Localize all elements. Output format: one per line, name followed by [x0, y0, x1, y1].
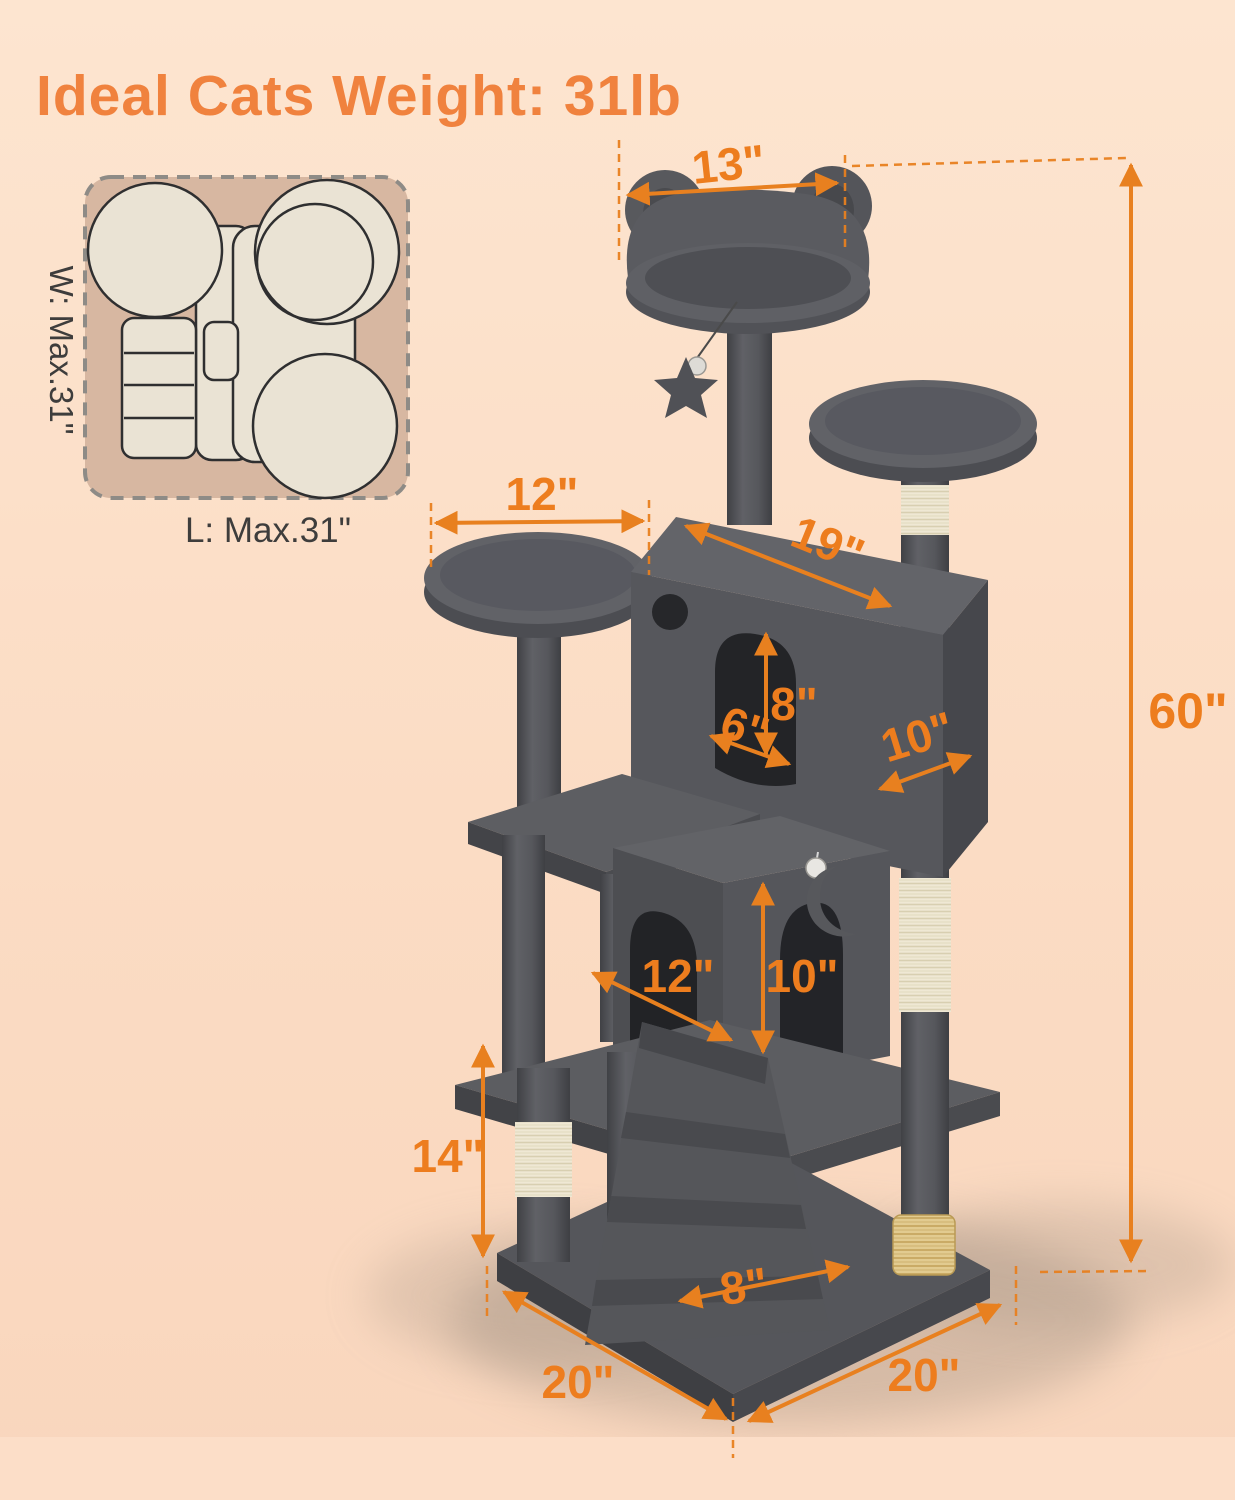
dim-label-left-perch-width: 12": [506, 468, 579, 520]
dim-label-base-length: 20": [542, 1356, 615, 1408]
condo-peek-hole: [652, 594, 688, 630]
floor-front-band: [0, 1437, 1235, 1500]
sisal-band-top: [901, 485, 949, 535]
footprint-small-block: [204, 322, 238, 380]
footprint-perch-circle-bottom: [253, 354, 397, 498]
left-perch-post: [517, 608, 561, 820]
dim-label-base-width: 20": [888, 1349, 961, 1401]
left-perch: [424, 532, 652, 638]
product-dimension-image: Ideal Cats Weight: 31lb W: Max.31" L: Ma…: [0, 0, 1235, 1500]
footprint-perch-circle-top: [255, 180, 399, 324]
footprint-ramp-block: [122, 318, 196, 458]
cat-self-groomer-brush: [893, 1215, 955, 1275]
illustration-canvas: Ideal Cats Weight: 31lb W: Max.31" L: Ma…: [0, 0, 1235, 1500]
footprint-length-label: L: Max.31": [185, 511, 351, 550]
footprint-perch-circle-left: [88, 183, 222, 317]
sisal-band-mid: [899, 878, 951, 1012]
lower-left-scratching-post: [515, 1068, 572, 1262]
sisal-band-lower-left: [515, 1122, 572, 1197]
perch-cushion: [645, 247, 851, 309]
dim-line-left-perch-width: [436, 521, 643, 523]
dim-label-ramp-width: 8": [717, 1257, 771, 1315]
dim-label-top-perch-width: 13": [689, 134, 767, 193]
footprint-inset: W: Max.31" L: Max.31": [43, 177, 408, 550]
right-post-lower: [893, 1012, 955, 1275]
dim-label-total-height: 60": [1148, 683, 1227, 739]
dim-label-post-height: 14": [412, 1130, 485, 1182]
dim-label-lower-condo-width: 12": [642, 950, 715, 1002]
footprint-shapes: [88, 180, 399, 498]
right-perch: [809, 380, 1037, 482]
page-title: Ideal Cats Weight: 31lb: [36, 64, 682, 128]
mid-left-post: [502, 835, 545, 1087]
dim-label-lower-condo-height: 10": [766, 950, 839, 1002]
footprint-width-label: W: Max.31": [43, 266, 80, 435]
dim-label-entry-height: 8": [770, 678, 817, 730]
